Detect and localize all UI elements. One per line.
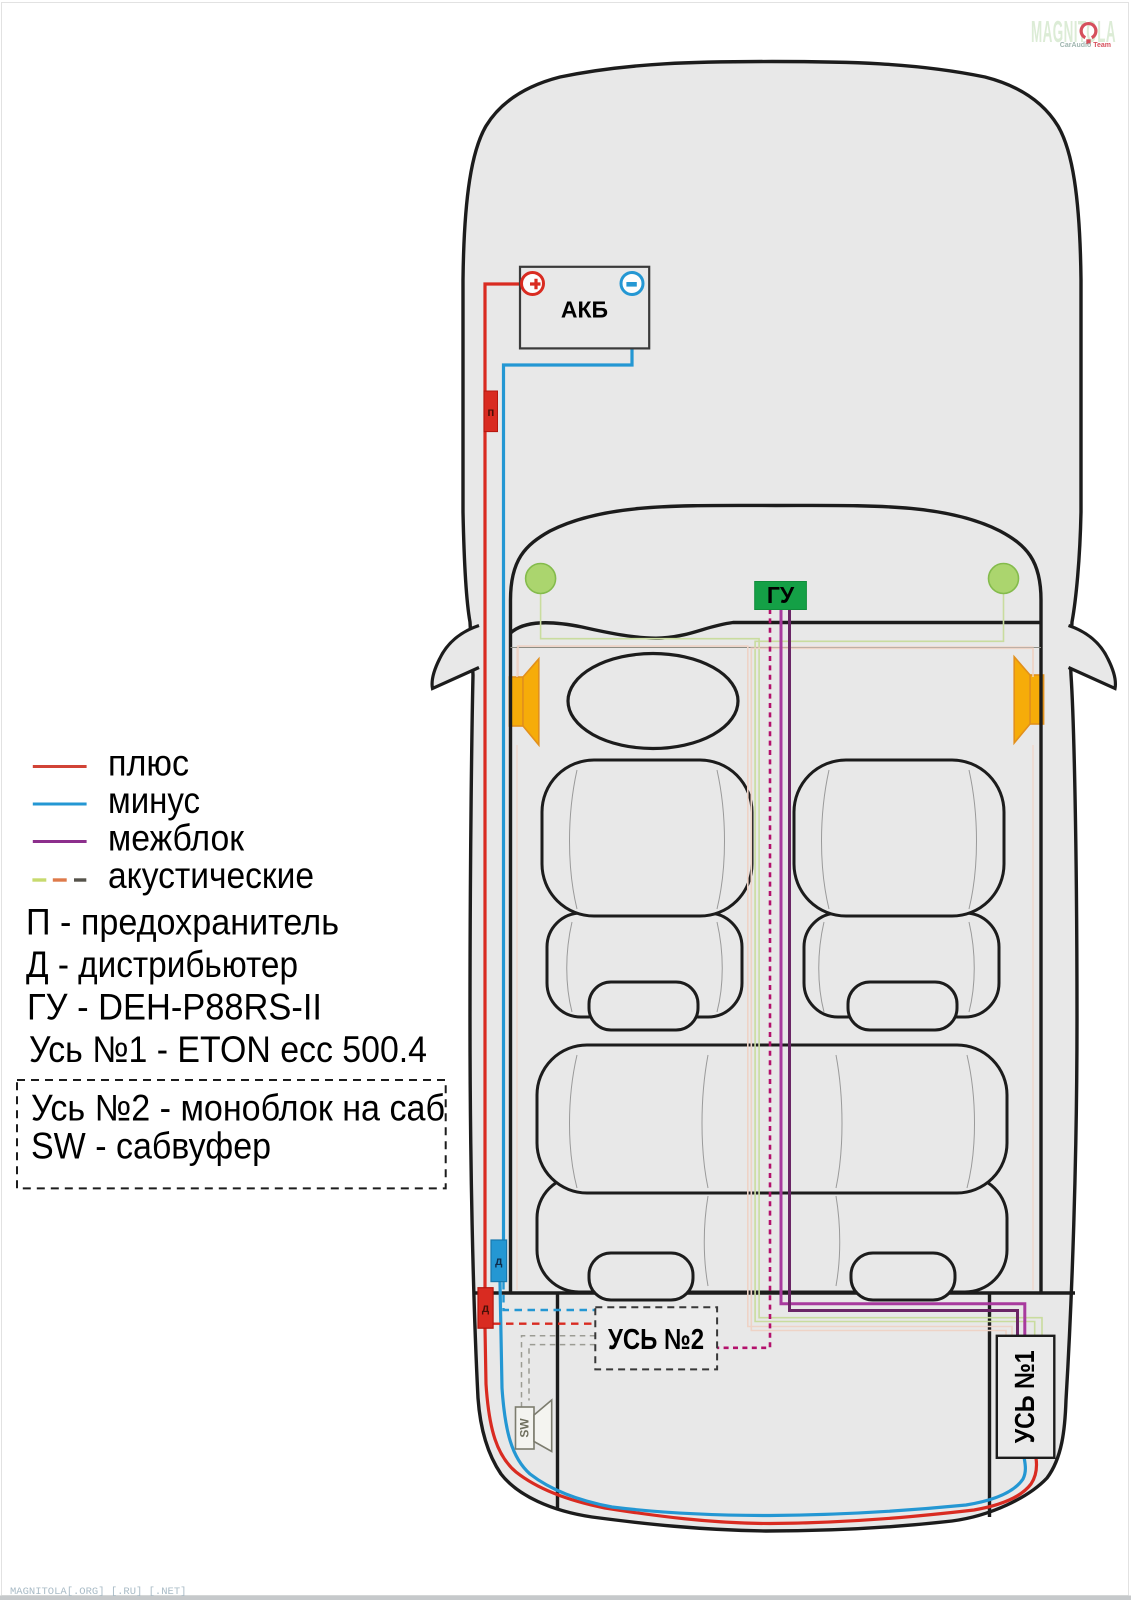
- svg-text:акустические: акустические: [108, 855, 314, 896]
- svg-text:АКБ: АКБ: [561, 297, 608, 323]
- svg-text:минус: минус: [108, 780, 200, 821]
- svg-text:SW: SW: [518, 1418, 532, 1438]
- svg-text:Усь №2 - моноблок на саб: Усь №2 - моноблок на саб: [31, 1087, 445, 1128]
- svg-text:CarAudio Team: CarAudio Team: [1060, 42, 1111, 49]
- svg-text:УСЬ №1: УСЬ №1: [1009, 1350, 1040, 1443]
- svg-text:плюс: плюс: [108, 743, 189, 784]
- svg-text:SW - сабвуфер: SW - сабвуфер: [31, 1126, 271, 1167]
- svg-text:УСЬ №2: УСЬ №2: [608, 1324, 704, 1356]
- svg-text:ГУ: ГУ: [767, 582, 795, 608]
- svg-text:П - предохранитель: П - предохранитель: [26, 902, 339, 943]
- svg-text:ГУ - DEH-P88RS-II: ГУ - DEH-P88RS-II: [27, 987, 322, 1028]
- svg-text:MAGNITOLA[.ORG] [.RU] [.NET]: MAGNITOLA[.ORG] [.RU] [.NET]: [10, 1586, 186, 1598]
- svg-text:д: д: [495, 1256, 503, 1268]
- svg-text:д: д: [482, 1303, 490, 1315]
- svg-text:Усь №1 - ETON ecc 500.4: Усь №1 - ETON ecc 500.4: [29, 1029, 427, 1070]
- svg-text:межблок: межблок: [108, 818, 245, 859]
- svg-text:п: п: [487, 407, 494, 419]
- svg-text:Д - дистрибьютер: Д - дистрибьютер: [26, 944, 298, 985]
